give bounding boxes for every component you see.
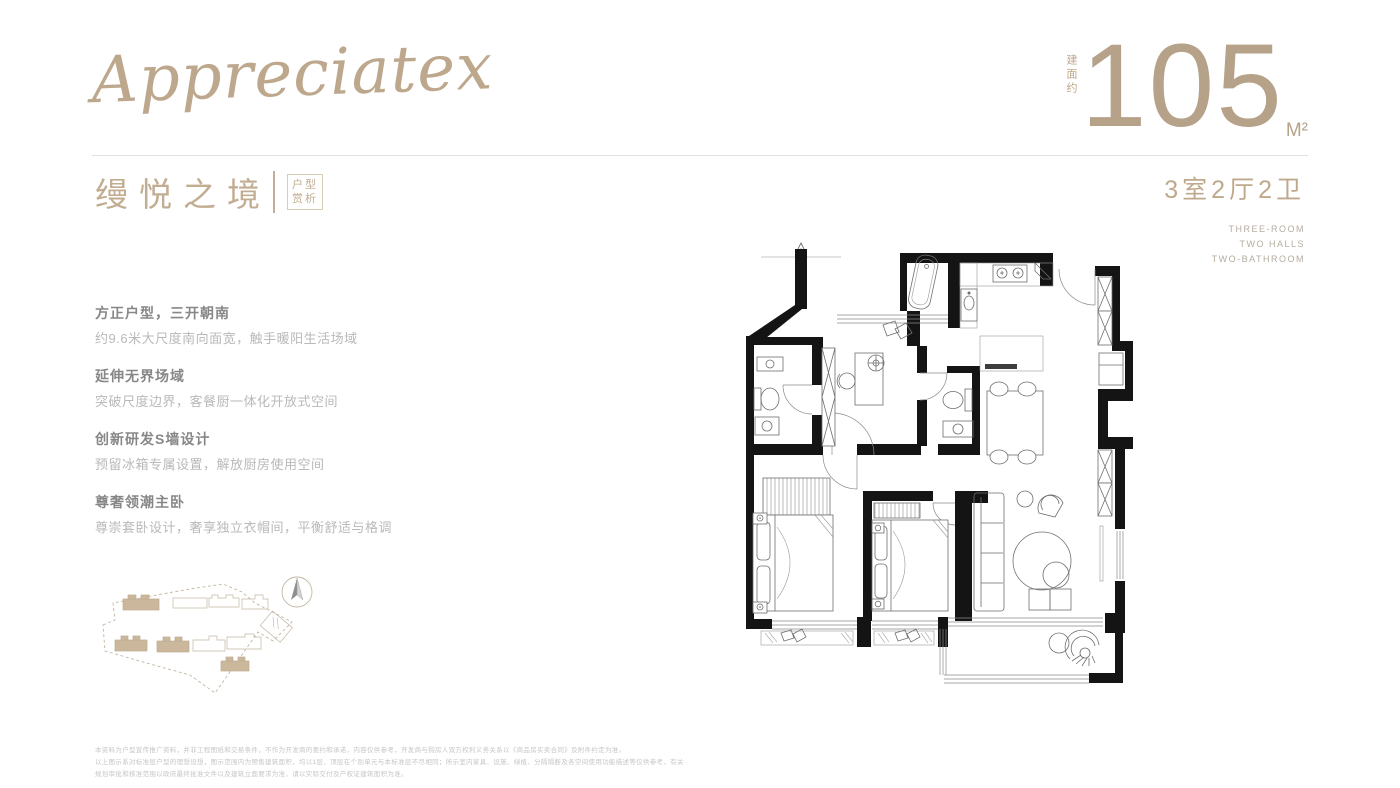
- fridge: [1099, 353, 1123, 385]
- island-bar: [985, 364, 1017, 369]
- stove: [993, 265, 1027, 282]
- title-tag-line1: 户型: [292, 178, 318, 192]
- title-tag: 户型 赏析: [287, 174, 323, 210]
- armchair: [1038, 495, 1063, 517]
- title-tag-line2: 赏析: [292, 192, 318, 206]
- poster-page: Appreciatex 建面约 105 M² 缦悦之境 户型 赏析 3室2厅2卫…: [0, 0, 1400, 788]
- desk-chair: [839, 373, 855, 389]
- feature-desc: 尊崇套卧设计，奢享独立衣帽间，平衡舒适与格调: [95, 517, 435, 536]
- disclaimer: 本资料为户型宣传推广资料，并非工程图纸和交易条件，不作为开发商的要约和承诺，内容…: [95, 745, 735, 781]
- spec-en-line1: THREE-ROOM: [1164, 222, 1305, 237]
- site-buildings-row3: [221, 657, 249, 671]
- vanity: [757, 357, 783, 371]
- area-prefix-label: 建面约: [1063, 54, 1079, 96]
- study-room: [822, 321, 912, 446]
- spec-block: 3室2厅2卫 THREE-ROOM TWO HALLS TWO-BATHROOM: [1164, 170, 1305, 267]
- site-plan-svg: [95, 565, 330, 705]
- feature-item: 创新研发S墙设计 预留冰箱专属设置，解放厨房使用空间: [95, 429, 435, 473]
- site-buildings-row1: [123, 595, 292, 642]
- site-plan-map: [95, 565, 330, 705]
- feature-title: 尊奢领潮主卧: [95, 492, 435, 512]
- spec-en-line3: TWO-BATHROOM: [1164, 252, 1305, 267]
- feature-desc: 预留冰箱专属设置，解放厨房使用空间: [95, 454, 435, 473]
- sofa: [974, 493, 1004, 611]
- living-room: [974, 491, 1103, 611]
- stool: [1017, 491, 1033, 507]
- floor-plan: [737, 241, 1167, 708]
- feature-item: 延伸无界场域 突破尺度边界，客餐厨一体化开放式空间: [95, 366, 435, 410]
- feature-item: 方正户型，三开朝南 约9.6米大尺度南向面宽，触手暖阳生活场域: [95, 303, 435, 347]
- feature-title: 方正户型，三开朝南: [95, 303, 435, 323]
- feature-list: 方正户型，三开朝南 约9.6米大尺度南向面宽，触手暖阳生活场域 延伸无界场域 突…: [95, 303, 435, 555]
- area-number: 105: [1081, 32, 1284, 140]
- basin-cabinet: [943, 421, 973, 437]
- bedroom2-bed: [872, 520, 948, 611]
- feature-desc: 约9.6米大尺度南向面宽，触手暖阳生活场域: [95, 328, 435, 347]
- toilet-tank: [965, 389, 972, 411]
- header-divider: [92, 155, 1308, 156]
- toilet: [943, 392, 963, 409]
- area-badge: 建面约 105 M²: [1063, 32, 1308, 152]
- site-buildings-row2: [115, 634, 261, 652]
- area-unit: M²: [1286, 120, 1308, 142]
- disclaimer-line3: 规划审批和核准范围以政府最终批准文件以及建筑立面要求为准，请以实际交付及产权证建…: [95, 769, 735, 781]
- balcony: [1049, 630, 1099, 666]
- feature-title: 创新研发S墙设计: [95, 429, 435, 449]
- page-title: 缦悦之境: [95, 168, 271, 216]
- master-bed: [753, 515, 833, 611]
- fan-chair: [1065, 630, 1099, 666]
- feature-desc: 突破尺度边界，客餐厨一体化开放式空间: [95, 391, 435, 410]
- spec-english: THREE-ROOM TWO HALLS TWO-BATHROOM: [1164, 222, 1305, 267]
- toilet-tank: [754, 388, 761, 410]
- brand-script-logo: Appreciatex: [90, 32, 453, 149]
- title-block: 缦悦之境 户型 赏析: [95, 168, 323, 216]
- master-bedroom: [753, 478, 833, 642]
- dining-area: [987, 382, 1043, 464]
- disclaimer-line1: 本资料为户型宣传推广资料，并非工程图纸和交易条件，不作为开发商的要约和承诺，内容…: [95, 745, 735, 757]
- compass-icon: [282, 577, 312, 607]
- disclaimer-line2: 以上图示系对标准层户型的理想设想，图示范围内为预售建筑面积，均以1层、顶层在个别…: [95, 757, 735, 769]
- feature-title: 延伸无界场域: [95, 366, 435, 386]
- toilet: [761, 388, 779, 410]
- dining-table: [987, 391, 1043, 455]
- spec-en-line2: TWO HALLS: [1164, 237, 1305, 252]
- spec-rooms: 3室2厅2卫: [1164, 170, 1305, 206]
- bathroom-middle: [943, 389, 973, 437]
- bathroom-left: [754, 357, 783, 435]
- bedroom2-wardrobe: [874, 503, 920, 518]
- tv-panel: [1100, 526, 1103, 581]
- bath-cabinet: [755, 417, 779, 435]
- study-wardrobe: [822, 348, 835, 446]
- title-separator: [273, 171, 275, 213]
- desk: [855, 353, 883, 405]
- floor-plan-svg: [737, 241, 1167, 708]
- master-wardrobe: [763, 478, 830, 515]
- coffee-table: [1029, 589, 1050, 610]
- rug: [1013, 532, 1071, 590]
- feature-item: 尊奢领潮主卧 尊崇套卧设计，奢享独立衣帽间，平衡舒适与格调: [95, 492, 435, 536]
